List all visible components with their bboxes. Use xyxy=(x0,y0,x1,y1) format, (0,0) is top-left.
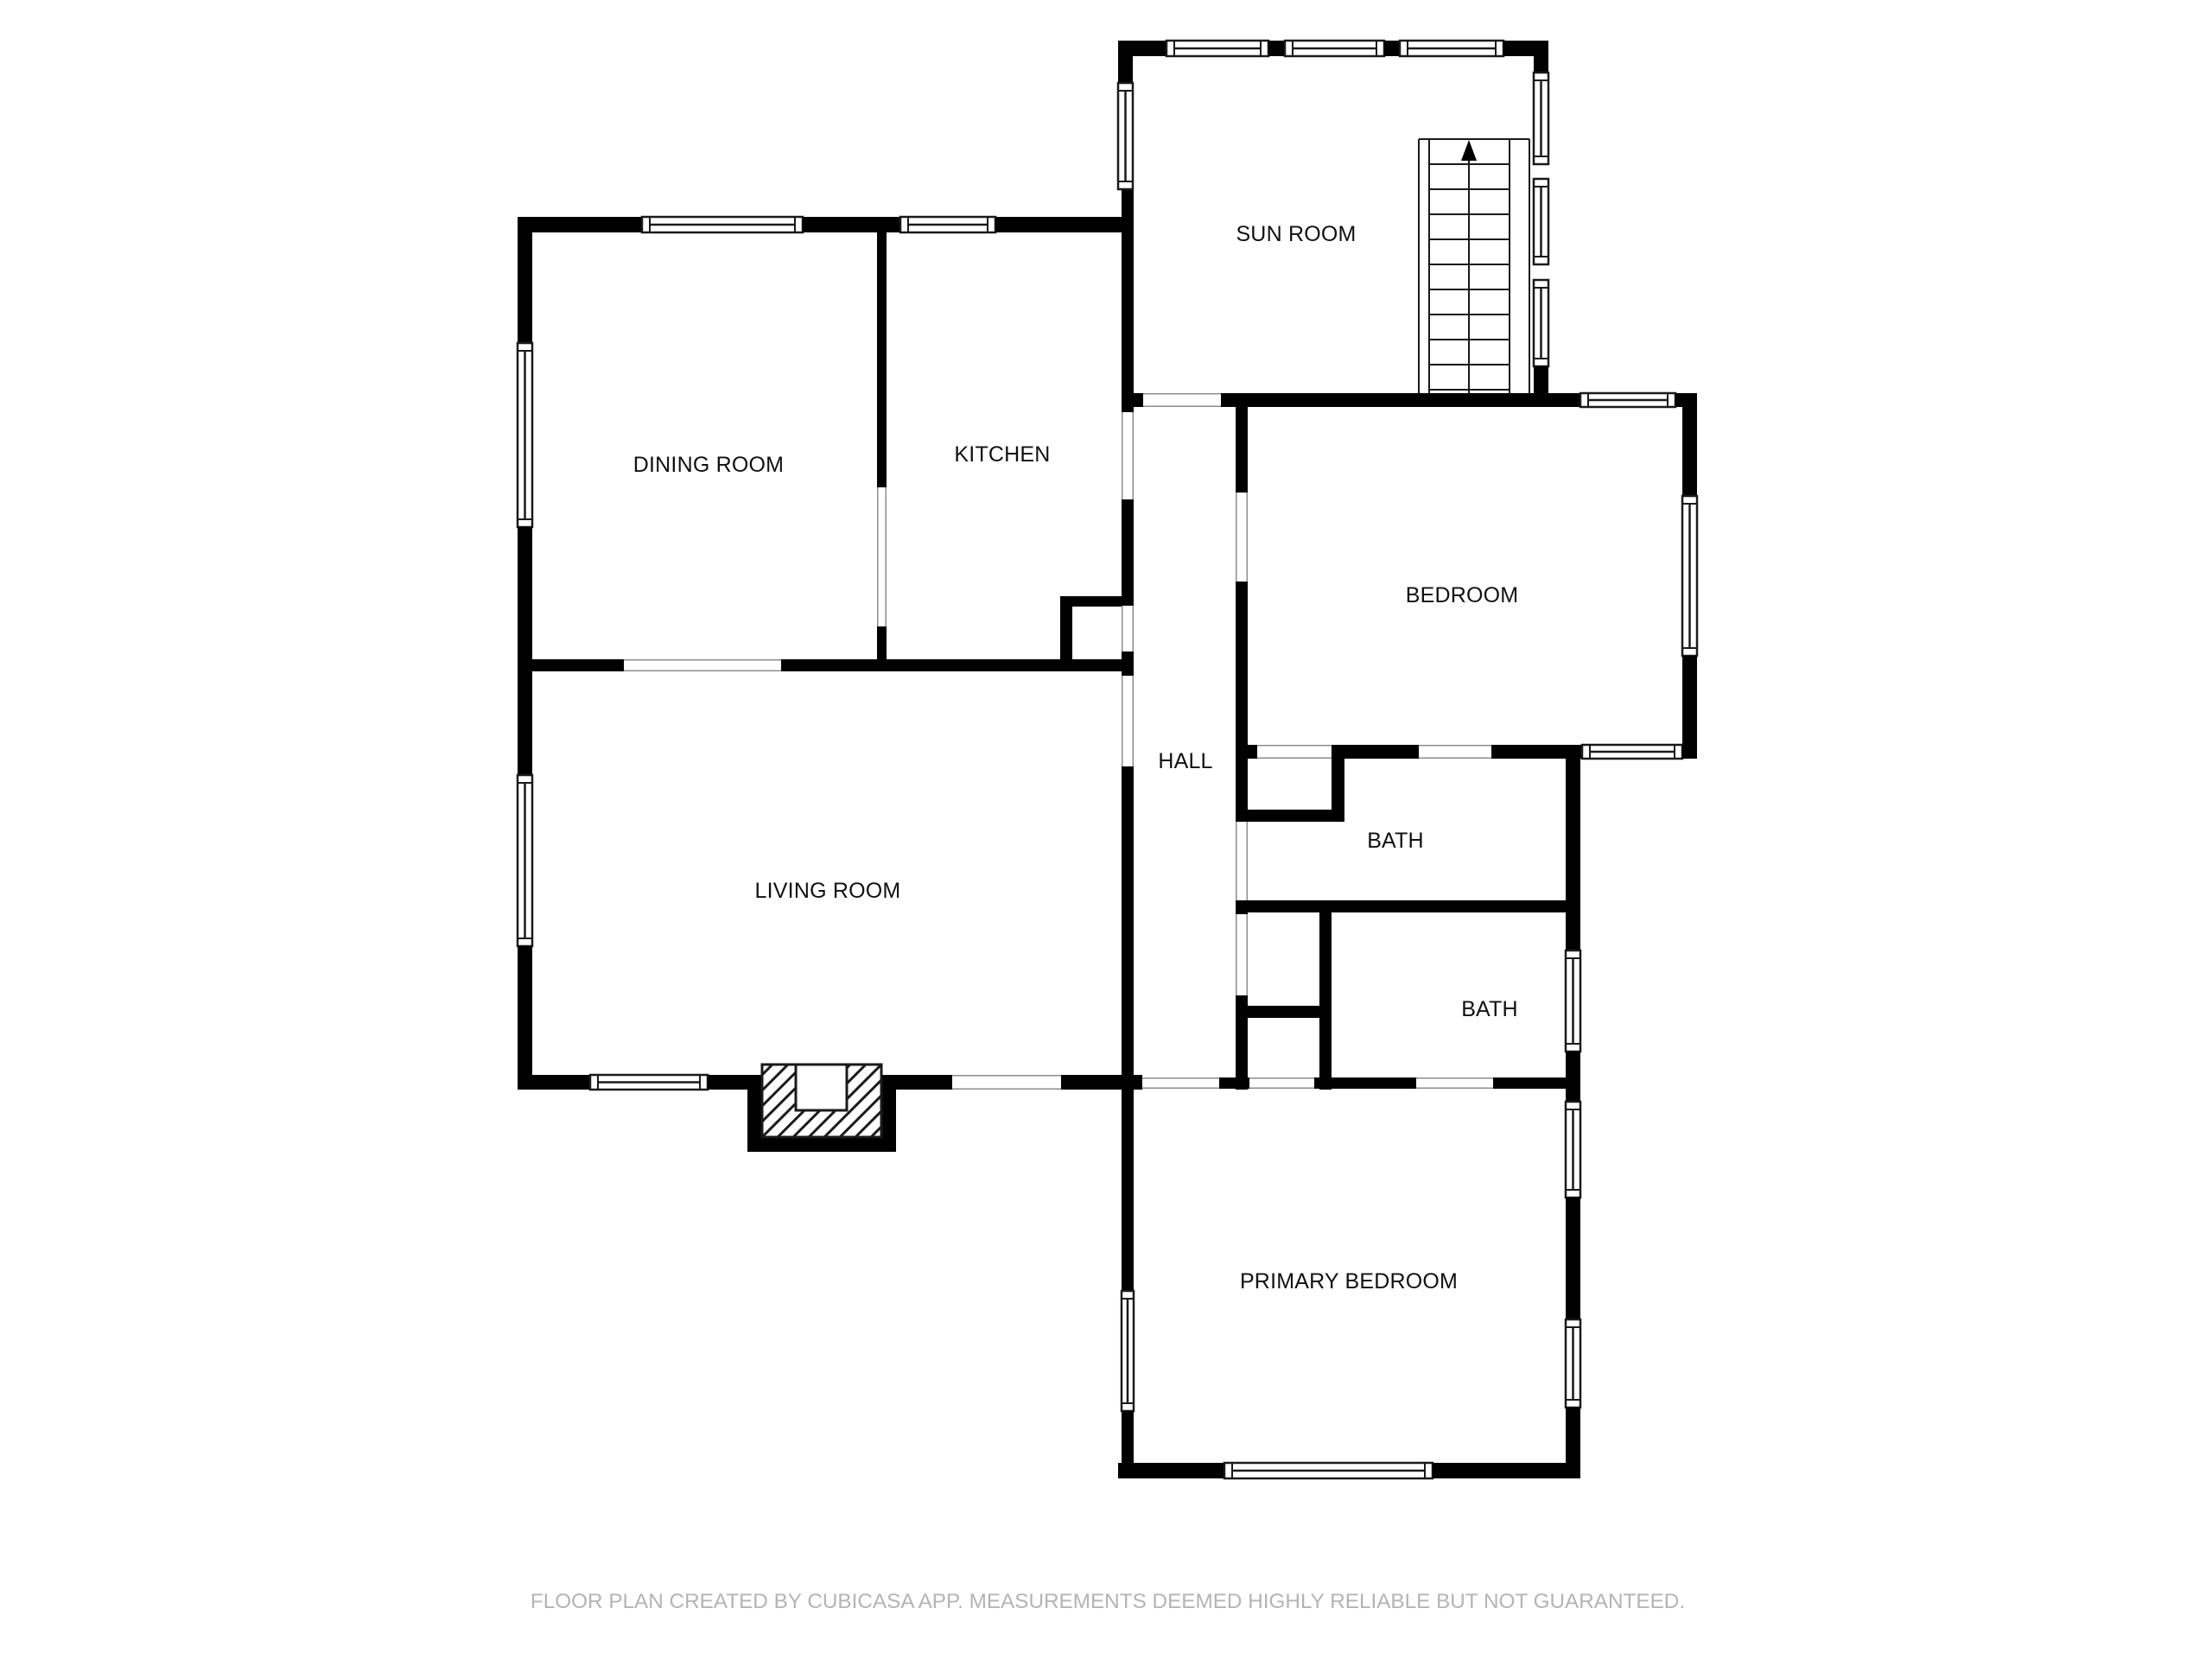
svg-text:SUN ROOM: SUN ROOM xyxy=(1236,222,1356,246)
svg-text:BEDROOM: BEDROOM xyxy=(1406,583,1519,607)
svg-text:HALL: HALL xyxy=(1158,749,1212,773)
svg-text:KITCHEN: KITCHEN xyxy=(954,442,1050,467)
svg-text:BATH: BATH xyxy=(1367,829,1424,853)
svg-text:PRIMARY BEDROOM: PRIMARY BEDROOM xyxy=(1240,1269,1458,1294)
svg-text:DINING ROOM: DINING ROOM xyxy=(633,453,784,477)
svg-text:FLOOR PLAN CREATED BY CUBICASA: FLOOR PLAN CREATED BY CUBICASA APP. MEAS… xyxy=(531,1590,1685,1613)
svg-text:LIVING ROOM: LIVING ROOM xyxy=(755,879,901,903)
svg-text:BATH: BATH xyxy=(1461,997,1518,1021)
